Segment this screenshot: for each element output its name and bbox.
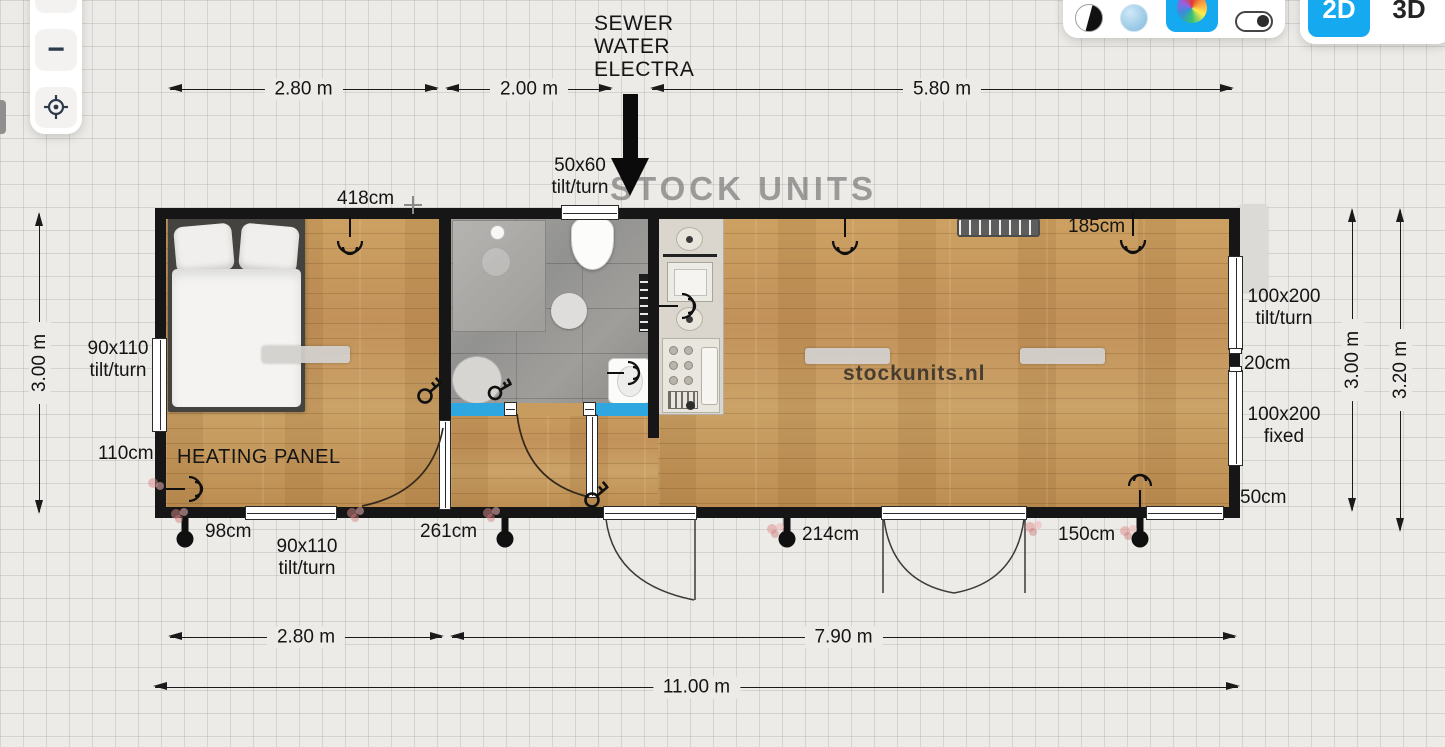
view-mode-toolbar: 2D 3D bbox=[1300, 0, 1445, 44]
blue-circle-icon bbox=[1120, 4, 1148, 32]
dimension-top-580: 5.80 m bbox=[652, 89, 1232, 90]
crosshair-icon bbox=[43, 94, 69, 120]
label-110cm: 110cm bbox=[98, 443, 154, 465]
utility-callout[interactable]: SEWER WATER ELECTRA bbox=[594, 12, 694, 81]
center-view-button[interactable] bbox=[35, 87, 77, 128]
entry-door-swing[interactable] bbox=[606, 519, 695, 600]
view-2d-button[interactable]: 2D bbox=[1308, 0, 1370, 37]
measure-cross-icon bbox=[404, 196, 422, 214]
zoom-out-button[interactable]: − bbox=[35, 29, 77, 70]
theme-color-button[interactable] bbox=[1166, 0, 1218, 32]
zoom-toolbar: + − bbox=[30, 0, 82, 134]
utility-line: WATER bbox=[594, 35, 694, 58]
theme-blue-button[interactable] bbox=[1120, 4, 1148, 32]
key-icon[interactable] bbox=[416, 377, 446, 405]
label-window-south: 90x110tilt/turn bbox=[265, 536, 349, 580]
wall-light-icon[interactable] bbox=[1129, 475, 1151, 507]
dimension-right-300: 3.00 m bbox=[1352, 210, 1353, 510]
wall-light-icon[interactable] bbox=[166, 477, 202, 501]
bedroom-door-swing[interactable] bbox=[362, 428, 443, 506]
floorplanner-canvas[interactable]: { "toolbar": { "zoom_in": "+", "zoom_out… bbox=[0, 0, 1445, 747]
rainbow-circle-icon bbox=[1177, 0, 1207, 23]
label-150cm: 150cm bbox=[1058, 524, 1115, 546]
watermark-logo: STOCK UNITS bbox=[610, 170, 877, 208]
label-window-east-bottom: 100x200fixed bbox=[1240, 404, 1328, 448]
wall-light-icon[interactable] bbox=[607, 362, 639, 384]
french-doors-swing[interactable] bbox=[883, 519, 1025, 593]
theme-toolbar bbox=[1063, 0, 1285, 38]
utility-line: ELECTRA bbox=[594, 58, 694, 81]
dimension-bottom-280: 2.80 m bbox=[170, 637, 442, 638]
dimension-right-320: 3.20 m bbox=[1400, 210, 1401, 530]
key-icon[interactable] bbox=[583, 481, 613, 509]
label-185cm: 185cm bbox=[1068, 216, 1125, 238]
zoom-in-button[interactable]: + bbox=[35, 0, 77, 13]
wall-light-icon[interactable] bbox=[659, 294, 695, 318]
key-icon[interactable] bbox=[487, 378, 515, 401]
ceiling-light-icon[interactable] bbox=[338, 218, 362, 254]
toggle-knob bbox=[1257, 15, 1269, 27]
label-20cm: 20cm bbox=[1244, 353, 1290, 375]
toggle-switch[interactable] bbox=[1235, 11, 1273, 32]
exterior-lamp-icon[interactable] bbox=[779, 518, 796, 548]
dimension-overall-1100: 11.00 m bbox=[155, 687, 1238, 688]
exterior-lamp-icon[interactable] bbox=[497, 518, 514, 548]
utility-line: SEWER bbox=[594, 12, 694, 35]
dimension-left-300: 3.00 m bbox=[39, 214, 40, 512]
label-window-east-top: 100x200tilt/turn bbox=[1240, 286, 1328, 330]
ceiling-light-icon[interactable] bbox=[833, 218, 857, 254]
label-98cm: 98cm bbox=[205, 521, 251, 543]
dimension-top-280: 2.80 m bbox=[170, 89, 437, 90]
theme-contrast-button[interactable] bbox=[1075, 4, 1103, 32]
utility-arrow[interactable] bbox=[623, 94, 638, 160]
label-window-50x60: 50x60tilt/turn bbox=[538, 155, 622, 199]
vertical-scrollbar[interactable] bbox=[0, 100, 6, 134]
label-50cm: 50cm bbox=[1240, 487, 1286, 509]
dimension-top-200: 2.00 m bbox=[447, 89, 611, 90]
label-heating-panel[interactable]: HEATING PANEL bbox=[177, 446, 341, 469]
label-261cm: 261cm bbox=[420, 521, 477, 543]
label-418cm: 418cm bbox=[337, 188, 394, 210]
half-circle-icon bbox=[1075, 4, 1103, 32]
view-3d-button[interactable]: 3D bbox=[1378, 0, 1440, 37]
flower-decoration bbox=[148, 478, 1137, 540]
dimension-bottom-790: 7.90 m bbox=[452, 637, 1235, 638]
label-214cm: 214cm bbox=[802, 524, 859, 546]
label-window-west: 90x110tilt/turn bbox=[76, 338, 160, 382]
bathroom-door-swing[interactable] bbox=[517, 414, 589, 497]
